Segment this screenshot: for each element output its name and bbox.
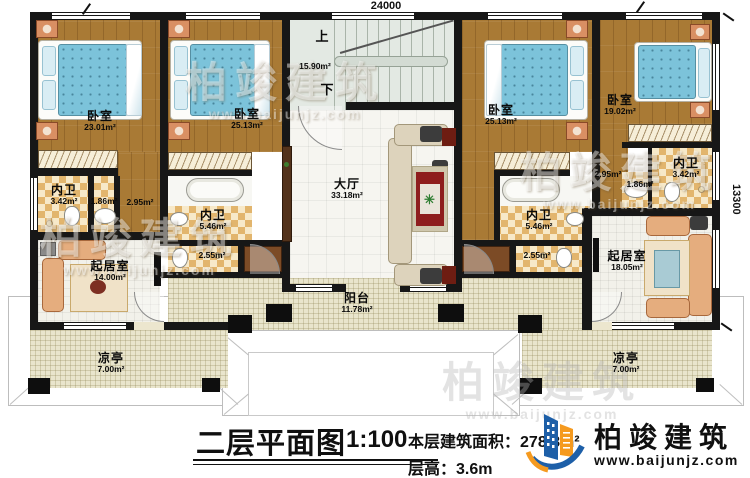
floor-drain (698, 186, 705, 193)
room-label-closet-left: 2.95m² (127, 197, 154, 207)
room-label-bedroom-2: 卧室 25.13m² (231, 108, 263, 131)
window (488, 12, 562, 20)
mattress (638, 45, 696, 99)
wall (238, 246, 244, 272)
plan-title: 二层平面图 (196, 420, 346, 462)
side-table (690, 216, 708, 230)
wall (494, 176, 500, 240)
pillow (174, 46, 188, 76)
window (30, 178, 38, 230)
pillow (174, 80, 188, 110)
sofa (646, 298, 690, 318)
pillow (570, 80, 584, 110)
floor-plan: ✳ 卧室 23.01m² 卧室 25.13m² 卧室 25.13m² 卧室 19… (0, 0, 750, 478)
wall (346, 102, 454, 110)
room-label-closet-right: 2.95m² (595, 169, 622, 179)
wall (30, 322, 232, 330)
column (266, 304, 292, 322)
wardrobe (494, 152, 570, 170)
sofa (388, 138, 412, 264)
window (612, 322, 674, 330)
room-label-bedroom-4: 卧室 19.02m² (604, 94, 636, 117)
end-table (442, 266, 456, 284)
nightstand (36, 122, 58, 140)
side-table (40, 242, 56, 256)
wall (30, 232, 160, 240)
sofa (42, 258, 64, 312)
toilet (64, 206, 80, 226)
room-label-basin-right: 1.86m² (627, 179, 654, 189)
brand-website: www.baijunjz.com (594, 452, 739, 468)
wall (510, 246, 516, 272)
column (28, 378, 50, 394)
tv (593, 238, 599, 272)
pillow (42, 80, 56, 110)
dimension-right: 13300 (730, 184, 742, 240)
toilet (172, 248, 188, 268)
window (626, 12, 702, 20)
pillow (698, 48, 710, 98)
window (186, 12, 260, 20)
room-label-living-right: 起居室 18.05m² (607, 250, 646, 273)
nightstand (168, 20, 190, 38)
sofa (688, 234, 712, 316)
toilet (664, 182, 680, 202)
room-pavilion-left (30, 330, 228, 388)
window (64, 322, 126, 330)
roof-inner-outline (248, 352, 494, 416)
wardrobe (628, 124, 712, 142)
floor-height-value: 3.6m (456, 461, 492, 478)
armchair (420, 268, 442, 284)
mattress (190, 44, 256, 116)
wall (592, 208, 712, 216)
sofa (646, 216, 690, 236)
window (712, 44, 720, 110)
floor-area-label: 本层建筑面积： (408, 434, 520, 451)
toilet (556, 248, 572, 268)
wardrobe (168, 152, 252, 170)
stairs-down-label: 下 (320, 79, 333, 98)
washbasin (94, 208, 116, 224)
column (228, 315, 252, 333)
sofa (58, 240, 106, 260)
wall (160, 240, 290, 246)
wall (494, 170, 570, 176)
brand-logo-icon (524, 410, 590, 474)
door-opening (134, 322, 164, 330)
wall (648, 148, 652, 208)
plant (284, 162, 289, 167)
window (332, 12, 414, 20)
wall (462, 240, 592, 246)
nightstand (566, 20, 588, 38)
room-label-bath-right: 内卫 3.42m² (673, 157, 700, 180)
dimension-top: 24000 (360, 0, 412, 12)
mattress (58, 44, 128, 116)
nightstand (168, 122, 190, 140)
room-label-hall: 大厅 33.18m² (331, 178, 363, 201)
pillow (42, 46, 56, 76)
floor-drain (46, 220, 53, 227)
washbasin (566, 212, 584, 226)
closet-corridor-left (118, 152, 160, 232)
column (438, 304, 464, 322)
dimension-tick (723, 12, 735, 21)
stairs-area-label: 15.90m² (299, 61, 331, 71)
building-logo-icon (524, 410, 590, 474)
wall (168, 170, 252, 176)
bed-sheet-fold (254, 44, 270, 116)
nightstand (690, 24, 710, 40)
column (518, 315, 542, 333)
window (296, 284, 332, 292)
wall (592, 20, 600, 216)
nightstand (566, 122, 588, 140)
wall (30, 12, 38, 330)
pillow (570, 46, 584, 76)
armchair (420, 126, 442, 142)
plan-scale: 1:100 (346, 426, 407, 454)
room-label-living-left: 起居室 14.00m² (90, 260, 129, 283)
bathtub (186, 178, 244, 202)
wall (582, 208, 592, 330)
window (712, 152, 720, 200)
window (52, 12, 130, 20)
wall (160, 20, 168, 242)
nightstand (690, 102, 710, 118)
stair-rail (334, 56, 448, 67)
floor-height-label: 层高： (408, 461, 456, 478)
column (520, 378, 542, 394)
wall (38, 168, 118, 176)
room-label-bedroom-1: 卧室 23.01m² (84, 110, 116, 133)
room-label-pavilion-left: 凉亭 7.00m² (98, 352, 125, 375)
window (712, 230, 720, 288)
column (202, 378, 220, 392)
nightstand (36, 20, 58, 38)
tv-console (282, 146, 292, 242)
coffee-table (654, 250, 680, 288)
suite-corridor-right (462, 152, 494, 240)
brand-name: 柏竣建筑 (594, 416, 734, 456)
room-label-wc-left: 2.55m² (199, 250, 226, 260)
floor-height-line: 层高：3.6m (408, 455, 492, 478)
room-label-basin-left: 1.86m² (91, 196, 118, 206)
tv (154, 252, 161, 286)
end-table (442, 128, 456, 146)
plant-icon: ✳ (424, 192, 435, 208)
room-label-bath-left: 内卫 3.42m² (51, 184, 78, 207)
room-label-balcony: 阳台 11.78m² (341, 292, 372, 315)
washbasin (170, 212, 188, 226)
title-underline (193, 459, 438, 465)
bed-sheet-fold (126, 44, 142, 116)
room-label-bath-left-2: 内卫 5.46m² (200, 209, 227, 232)
column (696, 378, 714, 392)
room-label-pavilion-right: 凉亭 7.00m² (613, 352, 640, 375)
room-label-wc-right: 2.55m² (524, 250, 551, 260)
bathtub (502, 178, 560, 202)
room-label-bedroom-3: 卧室 25.13m² (485, 104, 517, 127)
room-label-bath-right-2: 内卫 5.46m² (526, 209, 553, 232)
wall (454, 20, 462, 284)
stairs-up-label: 上 (315, 26, 328, 45)
wardrobe (38, 150, 118, 170)
wall (622, 142, 712, 148)
